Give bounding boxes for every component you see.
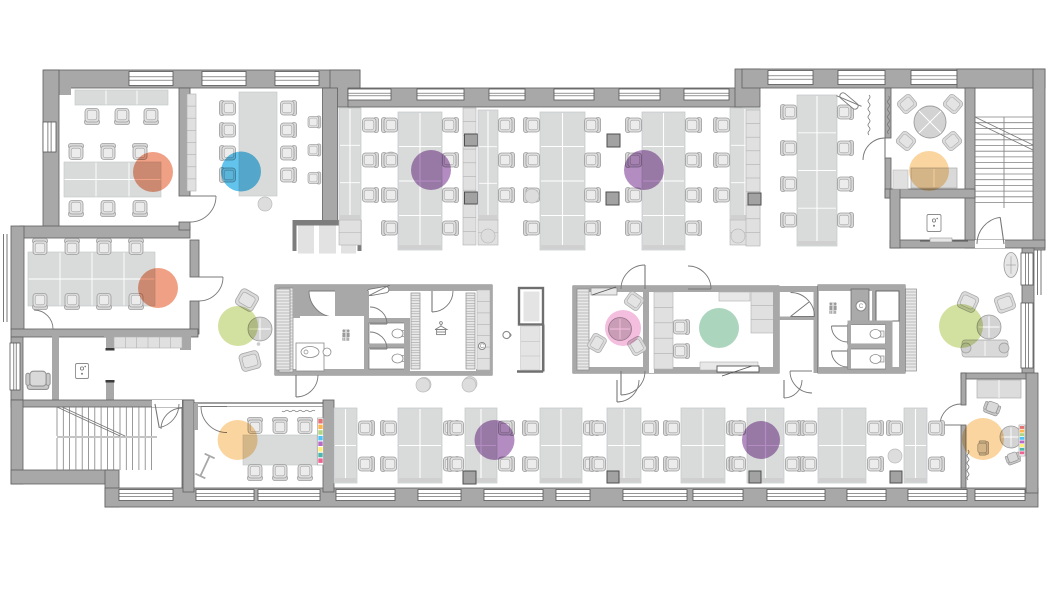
svg-text:C: C (480, 344, 485, 350)
svg-text:C: C (859, 304, 864, 310)
